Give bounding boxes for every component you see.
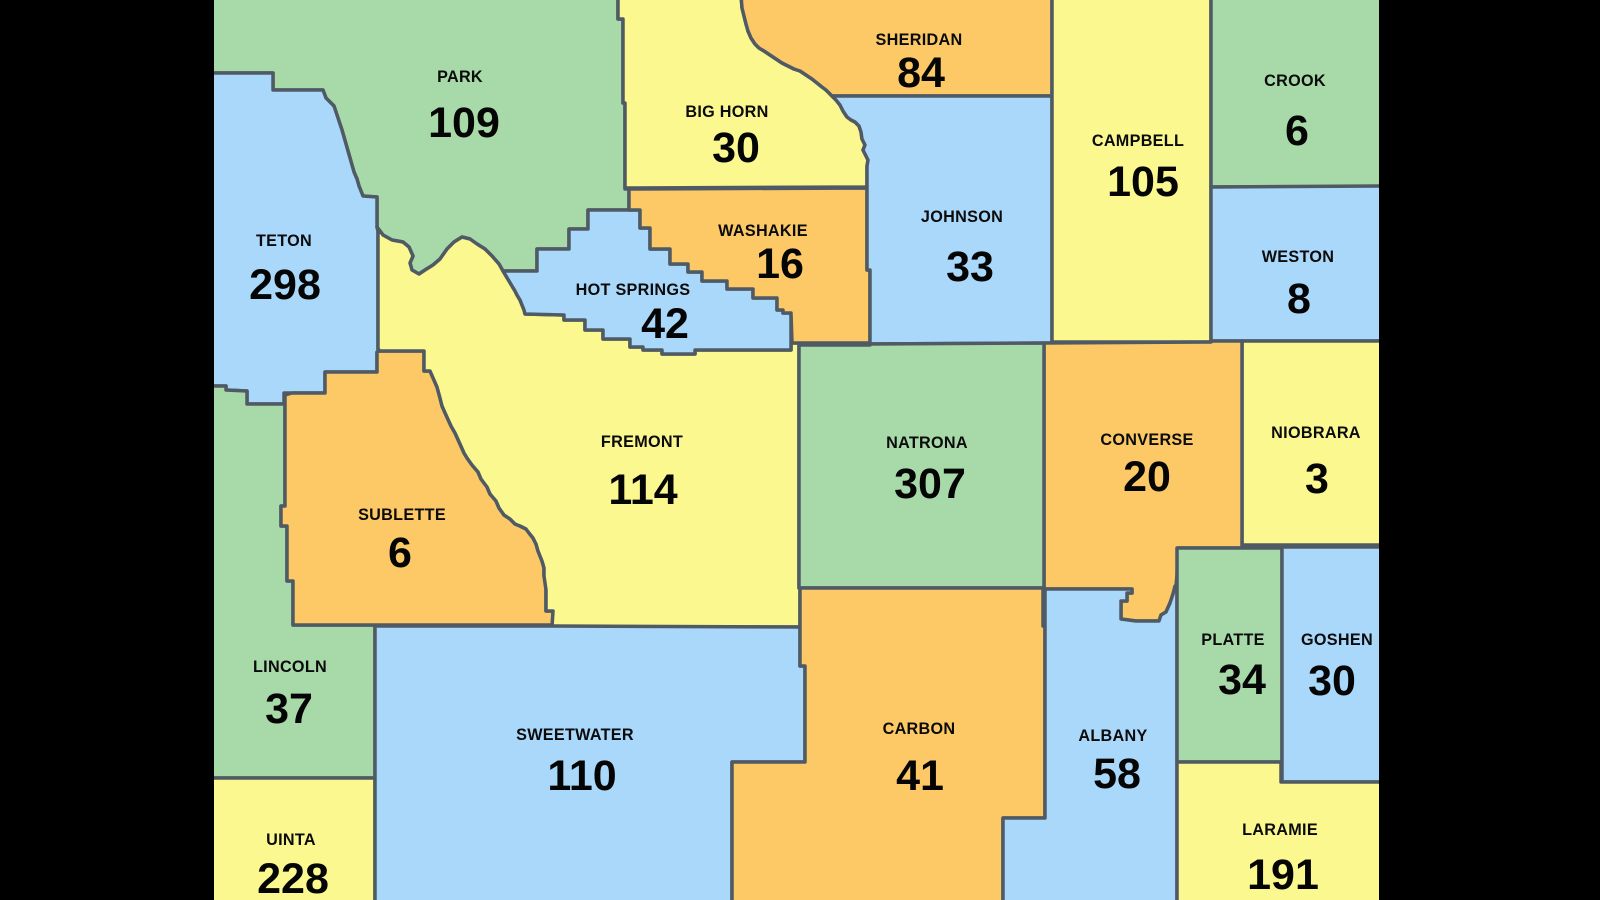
svg-text:307: 307: [894, 460, 966, 508]
svg-text:LARAMIE: LARAMIE: [1242, 821, 1318, 839]
svg-text:SWEETWATER: SWEETWATER: [516, 726, 634, 744]
svg-text:JOHNSON: JOHNSON: [921, 208, 1003, 226]
svg-text:TETON: TETON: [256, 232, 312, 250]
svg-text:NIOBRARA: NIOBRARA: [1271, 424, 1361, 442]
svg-text:105: 105: [1107, 158, 1179, 206]
svg-text:LINCOLN: LINCOLN: [253, 658, 327, 676]
svg-text:42: 42: [641, 300, 689, 348]
svg-text:84: 84: [897, 49, 945, 97]
svg-text:3: 3: [1305, 455, 1329, 503]
svg-text:110: 110: [547, 752, 616, 800]
svg-text:37: 37: [265, 685, 313, 733]
svg-text:CARBON: CARBON: [883, 720, 956, 738]
svg-text:298: 298: [249, 261, 321, 309]
svg-text:SHERIDAN: SHERIDAN: [876, 31, 963, 49]
svg-text:228: 228: [257, 855, 329, 900]
svg-text:PARK: PARK: [437, 68, 483, 86]
svg-text:109: 109: [428, 99, 500, 147]
svg-text:114: 114: [608, 466, 677, 514]
svg-text:41: 41: [896, 752, 944, 800]
svg-text:PLATTE: PLATTE: [1201, 631, 1265, 649]
svg-text:CROOK: CROOK: [1264, 72, 1326, 90]
svg-text:CONVERSE: CONVERSE: [1100, 431, 1193, 449]
svg-text:HOT SPRINGS: HOT SPRINGS: [576, 281, 691, 299]
svg-text:WESTON: WESTON: [1262, 248, 1335, 266]
svg-text:6: 6: [388, 529, 412, 577]
svg-text:191: 191: [1247, 851, 1319, 899]
svg-text:ALBANY: ALBANY: [1078, 727, 1147, 745]
svg-text:30: 30: [712, 124, 760, 172]
svg-text:33: 33: [946, 243, 994, 291]
svg-text:WASHAKIE: WASHAKIE: [718, 222, 808, 240]
svg-text:SUBLETTE: SUBLETTE: [358, 506, 446, 524]
svg-text:UINTA: UINTA: [266, 831, 316, 849]
svg-text:CAMPBELL: CAMPBELL: [1092, 132, 1184, 150]
svg-text:GOSHEN: GOSHEN: [1301, 631, 1373, 649]
svg-text:BIG HORN: BIG HORN: [685, 103, 768, 121]
svg-text:58: 58: [1093, 750, 1141, 798]
svg-text:34: 34: [1218, 656, 1266, 704]
svg-text:20: 20: [1123, 453, 1171, 501]
svg-text:30: 30: [1308, 657, 1356, 705]
svg-text:FREMONT: FREMONT: [601, 433, 683, 451]
svg-text:8: 8: [1287, 275, 1311, 323]
svg-text:NATRONA: NATRONA: [886, 434, 968, 452]
svg-text:6: 6: [1285, 107, 1309, 155]
svg-text:16: 16: [756, 240, 804, 288]
